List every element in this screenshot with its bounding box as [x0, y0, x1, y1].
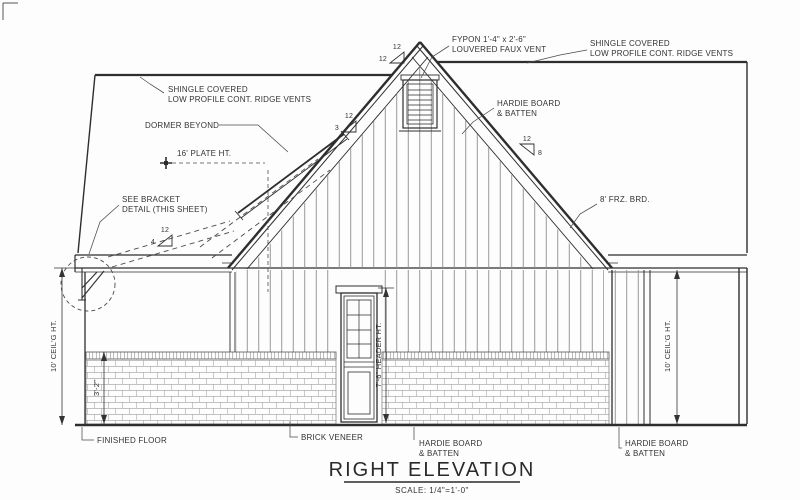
dimension-right-ceiling: 10' CEIL'G HT. — [663, 270, 680, 424]
left-roof-edge — [78, 75, 95, 253]
pitch-marker-right-roof: 12 8 — [520, 136, 542, 157]
gable-corner-trim — [230, 272, 235, 352]
left-ceiling-dim: 10' CEIL'G HT. — [49, 320, 58, 372]
brick-veneer-label: BRICK VENEER — [301, 433, 363, 442]
drawing-scale: SCALE: 1/4"=1'-0" — [395, 486, 469, 495]
ridge-vent-left-label-2: LOW PROFILE CONT. RIDGE VENTS — [168, 95, 311, 104]
pitch-dormer-rise: 3 — [335, 125, 339, 132]
bracket-detail-label-1: SEE BRACKET — [122, 195, 180, 204]
pitch-gable-rise: 12 — [379, 56, 387, 63]
pitch-porch-rise: 4 — [151, 239, 155, 246]
pitch-porch-run: 12 — [161, 227, 169, 234]
pitch-right-rise: 8 — [538, 150, 542, 157]
hardie-center-label-1: HARDIE BOARD — [419, 439, 482, 448]
pitch-marker-gable: 12 12 — [379, 44, 404, 63]
hardie-upper-label-1: HARDIE BOARD — [497, 99, 560, 108]
wall-battens-left-of-door — [236, 270, 336, 352]
door-header-trim — [336, 286, 382, 293]
brick-height-dim: 3'-2" — [92, 380, 101, 396]
faux-vent-label-2: LOUVERED FAUX VENT — [452, 45, 546, 54]
plate-height-label: 16' PLATE HT. — [177, 149, 231, 158]
dimension-left-ceiling: 10' CEIL'G HT. — [49, 268, 76, 425]
porch-post — [739, 268, 747, 424]
wall-battens-right-of-door — [382, 270, 604, 352]
plate-height-datum — [160, 157, 172, 169]
faux-vent-label-1: FYPON 1'-4" x 2'-6" — [452, 35, 526, 44]
bracket-detail-label-2: DETAIL (THIS SHEET) — [122, 205, 208, 214]
ridge-vent-left-label-1: SHINGLE COVERED — [168, 85, 248, 94]
eave-bracket — [61, 257, 115, 311]
door-header-dim: 7'-6" HEADER HT. — [374, 323, 383, 388]
pitch-marker-porch: 12 4 — [151, 227, 172, 246]
ridge-vent-right-label-2: LOW PROFILE CONT. RIDGE VENTS — [590, 49, 733, 58]
right-wall-battens — [612, 270, 642, 424]
frieze-board-label: 8' FRZ. BRD. — [600, 195, 650, 204]
hardie-right-label-2: & BATTEN — [625, 449, 665, 458]
pitch-right-run: 12 — [523, 136, 531, 143]
drawing-title: RIGHT ELEVATION — [329, 459, 536, 481]
pitch-gable-run: 12 — [393, 44, 401, 51]
hardie-right-label-1: HARDIE BOARD — [625, 439, 688, 448]
right-corner-trim — [644, 270, 650, 424]
border-corner-mark — [3, 3, 18, 20]
hardie-center-label-2: & BATTEN — [419, 449, 459, 458]
gable-siding — [230, 66, 604, 352]
bracket-detail-circle — [61, 257, 115, 311]
right-ceiling-dim: 10' CEIL'G HT. — [663, 320, 672, 372]
elevation-drawing: 12 12 12 8 12 3 12 4 SHINGLE COVERED LOW… — [0, 0, 800, 500]
finished-floor-label: FINISHED FLOOR — [97, 436, 167, 445]
title-block: RIGHT ELEVATION SCALE: 1/4"=1'-0" — [329, 459, 536, 495]
elevation-sheet: 12 12 12 8 12 3 12 4 SHINGLE COVERED LOW… — [0, 0, 800, 500]
pitch-dormer-run: 12 — [345, 113, 353, 120]
dormer-beyond-label: DORMER BEYOND — [145, 121, 219, 130]
hardie-upper-label-2: & BATTEN — [497, 109, 537, 118]
ridge-vent-right-label-1: SHINGLE COVERED — [590, 39, 670, 48]
